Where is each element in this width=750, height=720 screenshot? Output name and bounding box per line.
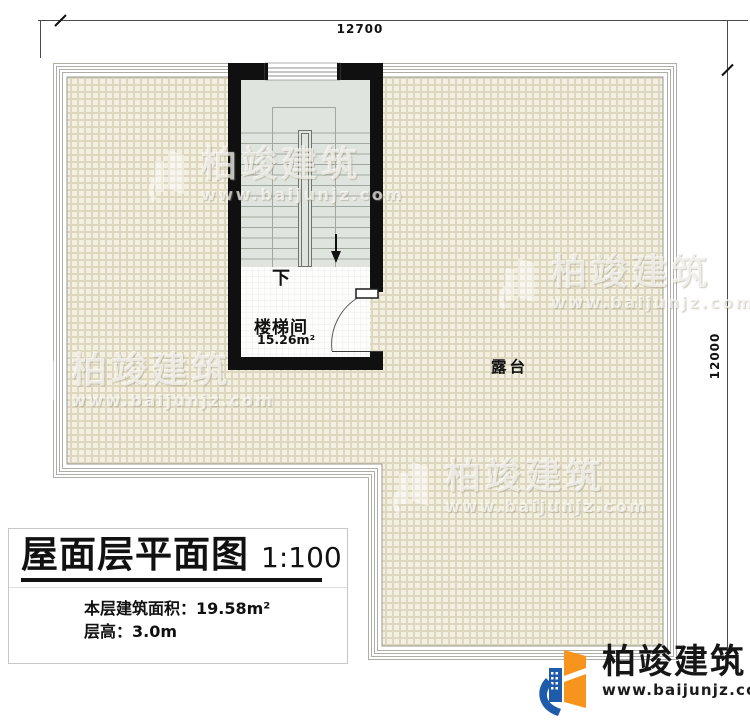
stair-direction-label: 下 <box>272 264 290 290</box>
title-divider <box>9 587 347 588</box>
title-block: 屋面层平面图 1:100 本层建筑面积：19.58m² 层高：3.0m <box>8 528 348 664</box>
logo-url: www.baijunjz.com <box>602 681 750 699</box>
terrace-label: 露台 <box>491 355 528 377</box>
logo-name: 柏竣建筑 <box>602 644 750 681</box>
floor-height-line: 层高：3.0m <box>84 620 347 643</box>
stair-railing <box>299 131 312 267</box>
dimension-top-value: 12700 <box>300 22 420 36</box>
drawing-title: 屋面层平面图 <box>21 534 249 577</box>
stairwell-window <box>265 63 340 80</box>
drawing-scale: 1:100 <box>261 541 342 574</box>
stairwell-area-value: 15.26m² <box>257 332 315 347</box>
logo-building-swoosh-icon <box>534 644 596 718</box>
floor-plan-page: 12700 12000 下 楼梯间 15.26m² 露台 柏竣建筑 www.ba… <box>0 0 750 720</box>
floor-area-line: 本层建筑面积：19.58m² <box>84 597 347 620</box>
title-underline <box>21 578 322 582</box>
dimension-right-value: 12000 <box>708 326 724 386</box>
company-logo: 柏竣建筑 www.baijunjz.com <box>534 644 750 718</box>
